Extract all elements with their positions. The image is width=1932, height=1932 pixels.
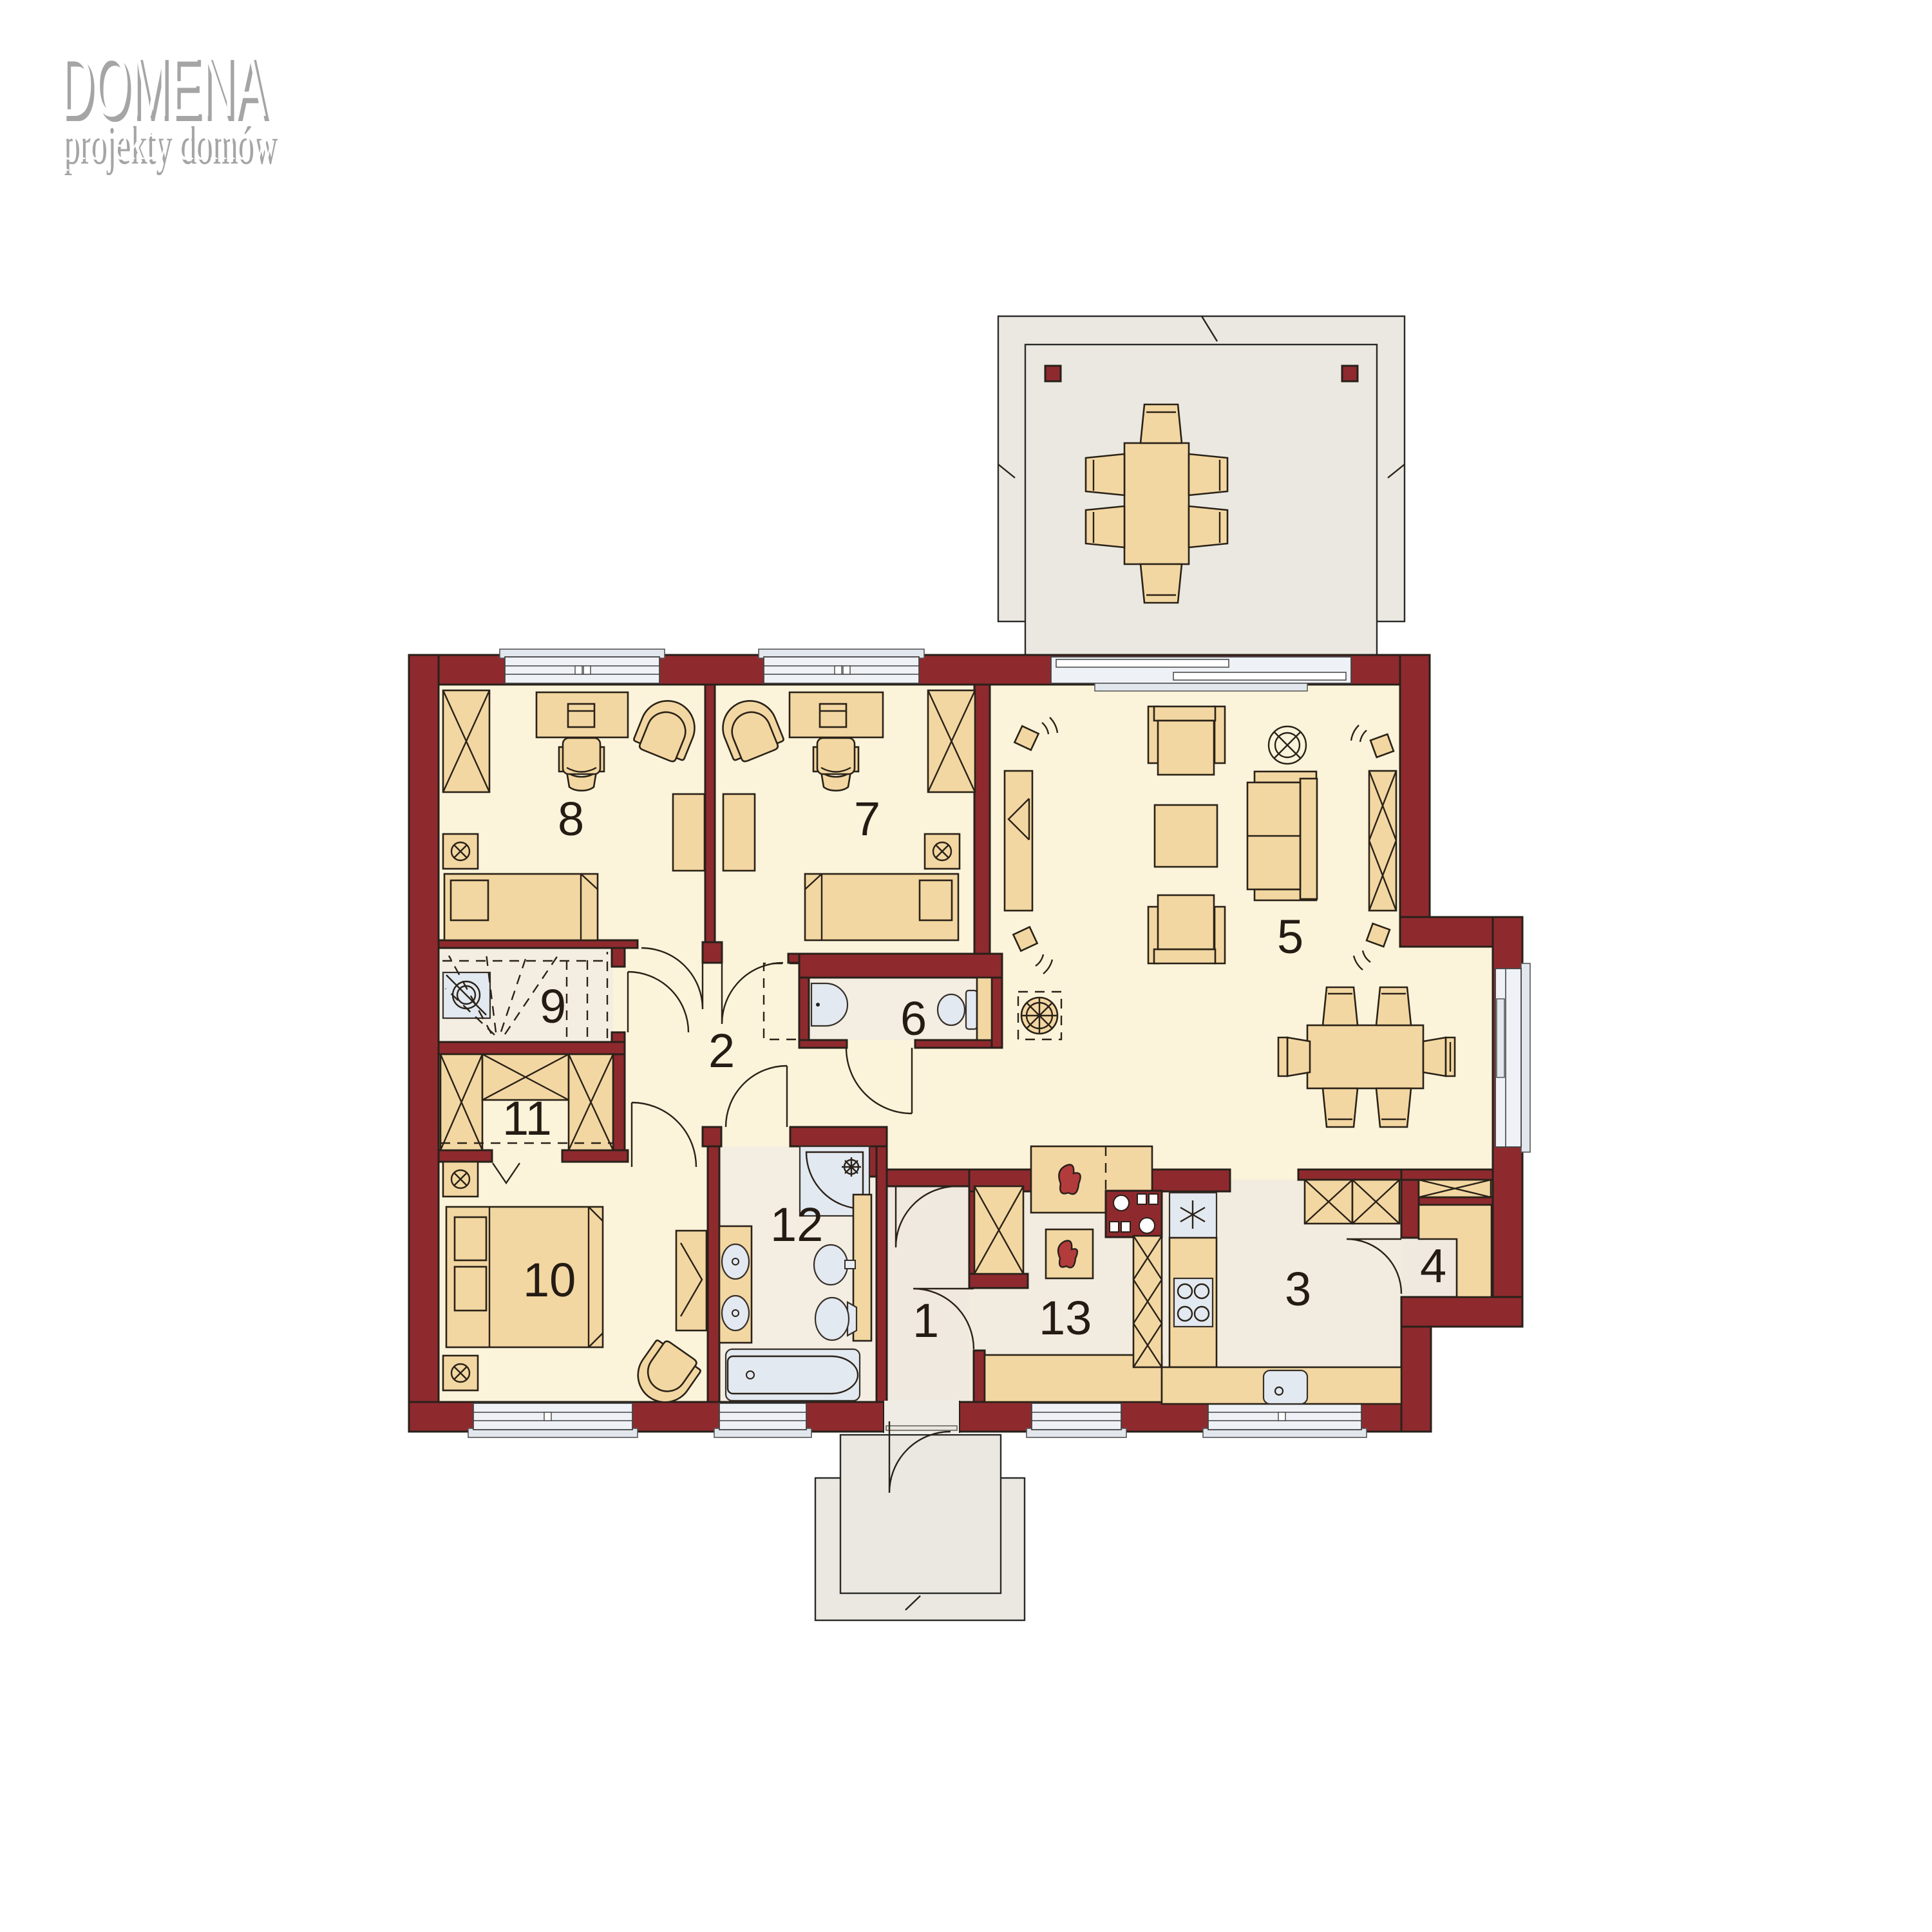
svg-text:4: 4: [1420, 1239, 1446, 1293]
svg-text:7: 7: [854, 792, 880, 846]
svg-text:11: 11: [502, 1092, 552, 1145]
svg-text:12: 12: [770, 1198, 823, 1251]
svg-text:3: 3: [1285, 1262, 1311, 1316]
svg-text:5: 5: [1277, 910, 1303, 963]
svg-text:8: 8: [558, 792, 584, 846]
svg-text:9: 9: [540, 980, 566, 1033]
svg-text:1: 1: [913, 1294, 939, 1347]
svg-text:projekty domów: projekty domów: [61, 111, 275, 171]
svg-text:2: 2: [708, 1024, 735, 1077]
svg-text:10: 10: [523, 1253, 576, 1307]
svg-text:6: 6: [900, 992, 927, 1045]
svg-text:13: 13: [1039, 1291, 1092, 1345]
